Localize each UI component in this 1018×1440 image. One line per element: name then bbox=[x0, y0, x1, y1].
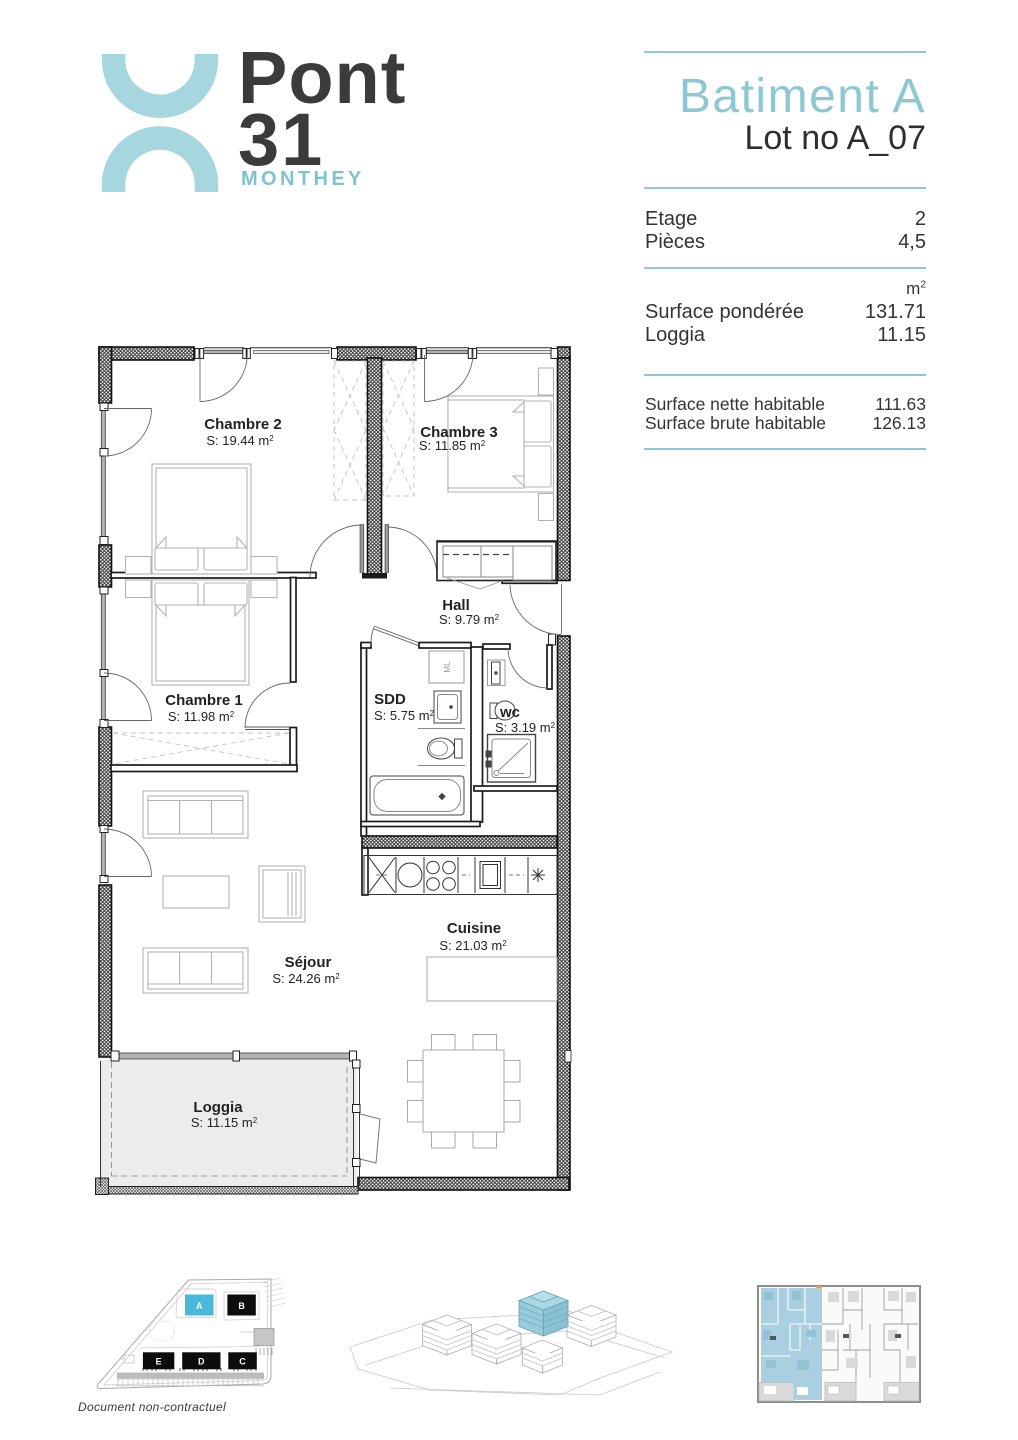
svg-text:Chambre 2: Chambre 2 bbox=[204, 416, 282, 433]
svg-text:S: 5.75 m2: S: 5.75 m2 bbox=[374, 708, 435, 723]
svg-text:C: C bbox=[239, 1357, 246, 1367]
svg-text:B: B bbox=[238, 1301, 245, 1311]
svg-text:Chambre 1: Chambre 1 bbox=[165, 692, 243, 709]
svg-text:Séjour: Séjour bbox=[285, 954, 332, 971]
svg-text:S: 11.98 m2: S: 11.98 m2 bbox=[168, 709, 235, 724]
svg-text:E: E bbox=[156, 1357, 162, 1367]
svg-text:A: A bbox=[196, 1301, 203, 1311]
svg-text:S: 24.26 m2: S: 24.26 m2 bbox=[272, 971, 340, 986]
svg-text:S: 21.03 m2: S: 21.03 m2 bbox=[439, 938, 507, 953]
svg-text:Loggia: Loggia bbox=[193, 1099, 243, 1116]
svg-text:S: 11.15 m2: S: 11.15 m2 bbox=[191, 1115, 258, 1130]
svg-text:S: 11.85 m2: S: 11.85 m2 bbox=[419, 438, 486, 453]
svg-text:SDD: SDD bbox=[374, 691, 406, 708]
svg-text:S: 19.44 m2: S: 19.44 m2 bbox=[206, 433, 274, 448]
svg-text:Cuisine: Cuisine bbox=[447, 920, 501, 937]
svg-text:S: 3.19 m2: S: 3.19 m2 bbox=[495, 720, 556, 735]
svg-text:wc: wc bbox=[499, 704, 520, 721]
svg-text:S: 9.79 m2: S: 9.79 m2 bbox=[439, 612, 500, 627]
svg-text:ML: ML bbox=[443, 661, 452, 673]
svg-text:D: D bbox=[198, 1357, 205, 1367]
